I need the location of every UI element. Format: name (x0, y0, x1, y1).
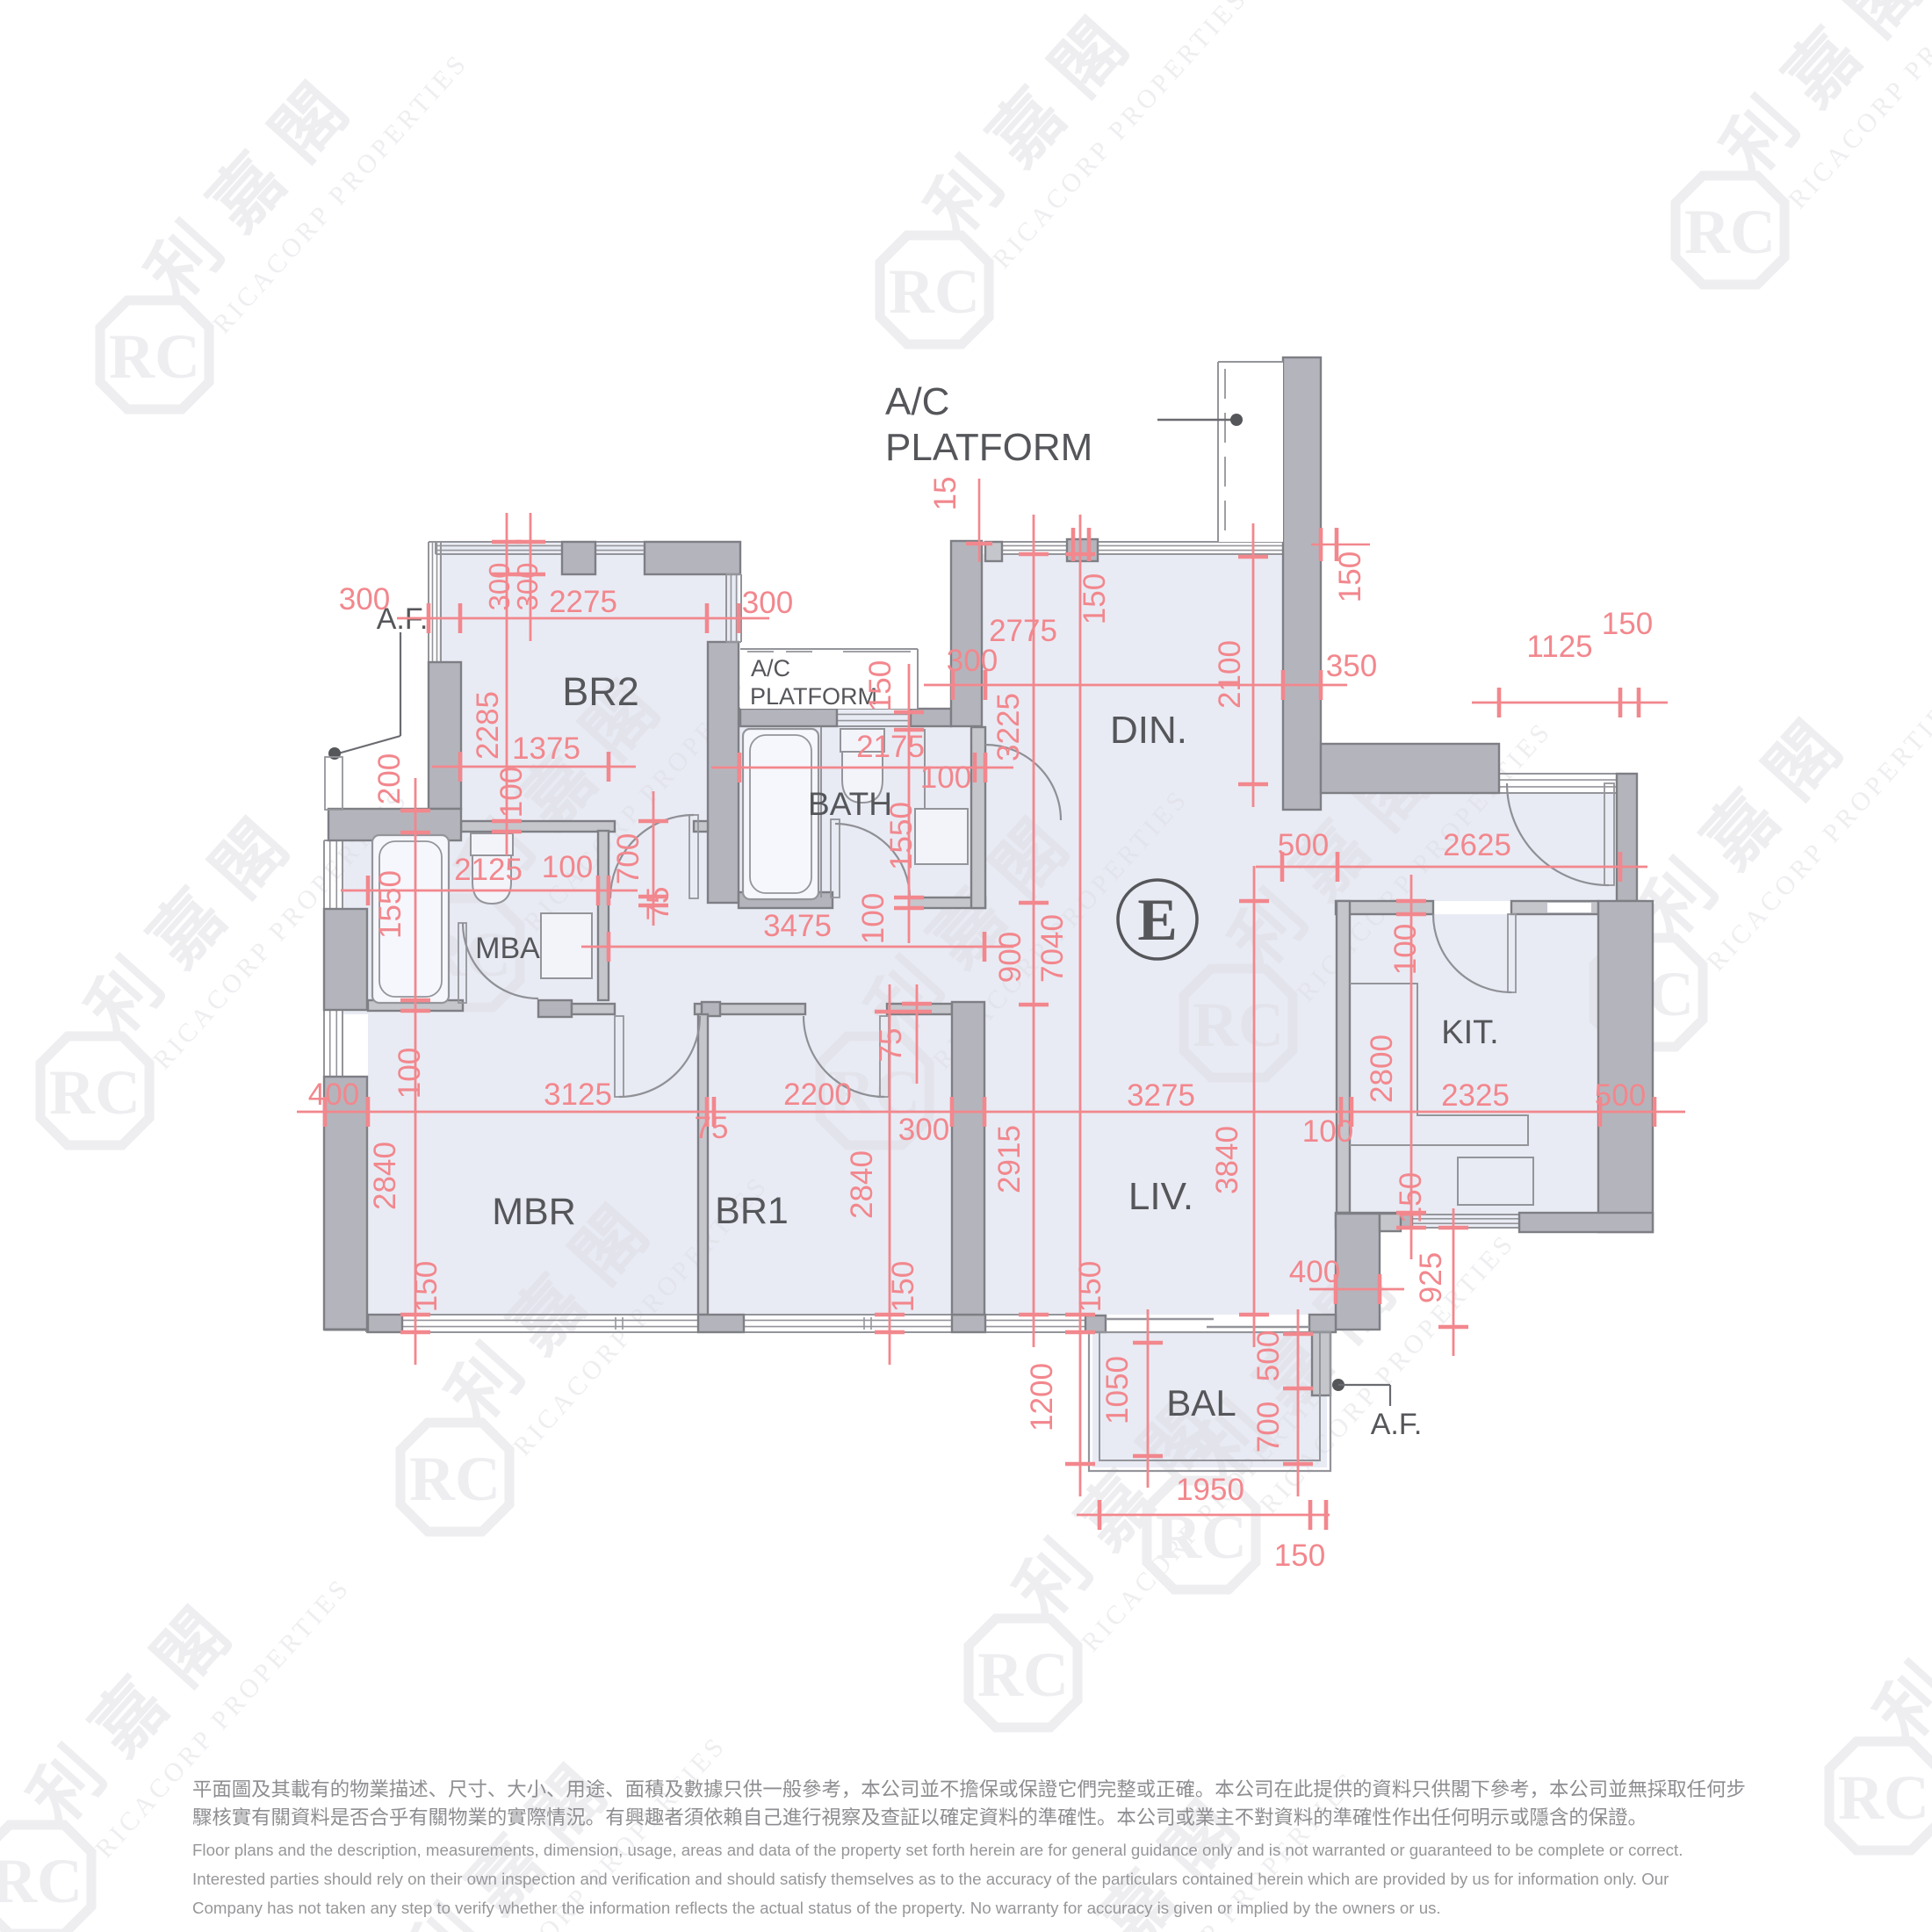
svg-text:PLATFORM: PLATFORM (750, 683, 877, 710)
svg-text:150: 150 (1078, 573, 1112, 624)
svg-text:150: 150 (1333, 551, 1367, 602)
svg-text:1125: 1125 (1526, 630, 1592, 664)
svg-text:2200: 2200 (783, 1078, 852, 1112)
svg-text:500: 500 (1278, 828, 1329, 862)
svg-text:2775: 2775 (989, 614, 1057, 648)
svg-text:150: 150 (886, 1261, 920, 1312)
svg-text:2840: 2840 (845, 1150, 879, 1219)
svg-text:2125: 2125 (454, 853, 523, 887)
svg-text:1050: 1050 (1100, 1356, 1135, 1424)
svg-text:KIT.: KIT. (1441, 1014, 1498, 1051)
svg-text:300: 300 (339, 582, 390, 616)
svg-text:2100: 2100 (1213, 640, 1247, 709)
svg-text:400: 400 (308, 1078, 359, 1112)
svg-text:PLATFORM: PLATFORM (885, 426, 1092, 469)
svg-text:A/C: A/C (885, 380, 949, 423)
svg-text:300: 300 (947, 644, 998, 678)
svg-text:150: 150 (409, 1261, 443, 1312)
svg-text:100: 100 (494, 767, 529, 818)
svg-text:100: 100 (1388, 924, 1423, 975)
svg-text:Company has not taken any step: Company has not taken any step to verify… (192, 1899, 1441, 1917)
svg-text:3475: 3475 (763, 909, 832, 943)
svg-text:2325: 2325 (1441, 1078, 1510, 1113)
svg-text:300: 300 (898, 1113, 949, 1147)
svg-text:150: 150 (1394, 1172, 1428, 1223)
svg-text:100: 100 (542, 850, 593, 884)
svg-text:Interested parties should rely: Interested parties should rely on their … (192, 1870, 1669, 1888)
svg-text:200: 200 (372, 753, 407, 804)
svg-text:MBR: MBR (492, 1191, 576, 1233)
svg-text:100: 100 (856, 893, 890, 944)
svg-text:平面圖及其載有的物業描述、尺寸、大小、用途、面積及數據只供一: 平面圖及其載有的物業描述、尺寸、大小、用途、面積及數據只供一般參考，本公司並不擔… (192, 1778, 1746, 1800)
svg-text:150: 150 (1274, 1539, 1325, 1573)
svg-text:LIV.: LIV. (1128, 1175, 1193, 1218)
svg-text:700: 700 (611, 833, 645, 884)
svg-text:DIN.: DIN. (1110, 709, 1187, 752)
svg-text:1550: 1550 (884, 802, 919, 870)
svg-text:BATH: BATH (808, 786, 892, 822)
svg-text:MBA: MBA (475, 932, 540, 965)
svg-text:15: 15 (928, 477, 962, 511)
svg-text:A.F.: A.F. (1371, 1408, 1423, 1441)
svg-text:BR1: BR1 (715, 1190, 789, 1232)
svg-text:2840: 2840 (368, 1142, 402, 1210)
svg-text:1200: 1200 (1025, 1363, 1059, 1431)
svg-text:100: 100 (1302, 1114, 1353, 1149)
svg-text:100: 100 (393, 1048, 427, 1099)
svg-text:75: 75 (695, 1111, 729, 1145)
svg-text:400: 400 (1289, 1255, 1340, 1289)
svg-text:2175: 2175 (856, 730, 925, 764)
svg-text:3840: 3840 (1210, 1126, 1244, 1194)
svg-text:100: 100 (920, 761, 971, 795)
svg-text:1950: 1950 (1176, 1473, 1244, 1507)
svg-text:A/C: A/C (751, 655, 790, 681)
svg-text:Floor plans and the descriptio: Floor plans and the description, measure… (192, 1841, 1683, 1859)
svg-text:150: 150 (1602, 607, 1653, 641)
svg-text:2275: 2275 (549, 585, 617, 619)
svg-text:900: 900 (993, 932, 1027, 983)
svg-text:75: 75 (874, 1028, 908, 1063)
svg-text:1550: 1550 (373, 870, 407, 939)
svg-text:150: 150 (1073, 1261, 1107, 1312)
svg-text:925: 925 (1414, 1252, 1448, 1303)
svg-text:2800: 2800 (1365, 1034, 1399, 1103)
svg-text:2285: 2285 (471, 691, 505, 760)
svg-text:1375: 1375 (512, 732, 580, 766)
svg-text:500: 500 (1251, 1330, 1286, 1381)
svg-text:驟核實有關資料是否合乎有關物業的實際情況。有興趣者須依賴自己: 驟核實有關資料是否合乎有關物業的實際情況。有興趣者須依賴自己進行視察及查証以確定… (192, 1806, 1647, 1828)
svg-text:300: 300 (511, 562, 544, 610)
svg-text:E: E (1137, 886, 1177, 953)
svg-text:75: 75 (641, 887, 675, 921)
svg-text:3275: 3275 (1127, 1078, 1195, 1113)
svg-text:3225: 3225 (991, 693, 1026, 761)
svg-text:700: 700 (1251, 1402, 1286, 1453)
svg-text:7040: 7040 (1035, 914, 1070, 983)
svg-text:150: 150 (863, 660, 898, 711)
svg-text:BR2: BR2 (562, 669, 639, 714)
svg-text:500: 500 (1595, 1078, 1646, 1113)
svg-text:3125: 3125 (544, 1078, 612, 1112)
svg-text:2625: 2625 (1443, 828, 1511, 862)
svg-text:2915: 2915 (992, 1125, 1027, 1193)
svg-text:300: 300 (742, 586, 793, 620)
svg-text:BAL: BAL (1166, 1382, 1236, 1424)
svg-text:350: 350 (1326, 649, 1377, 683)
